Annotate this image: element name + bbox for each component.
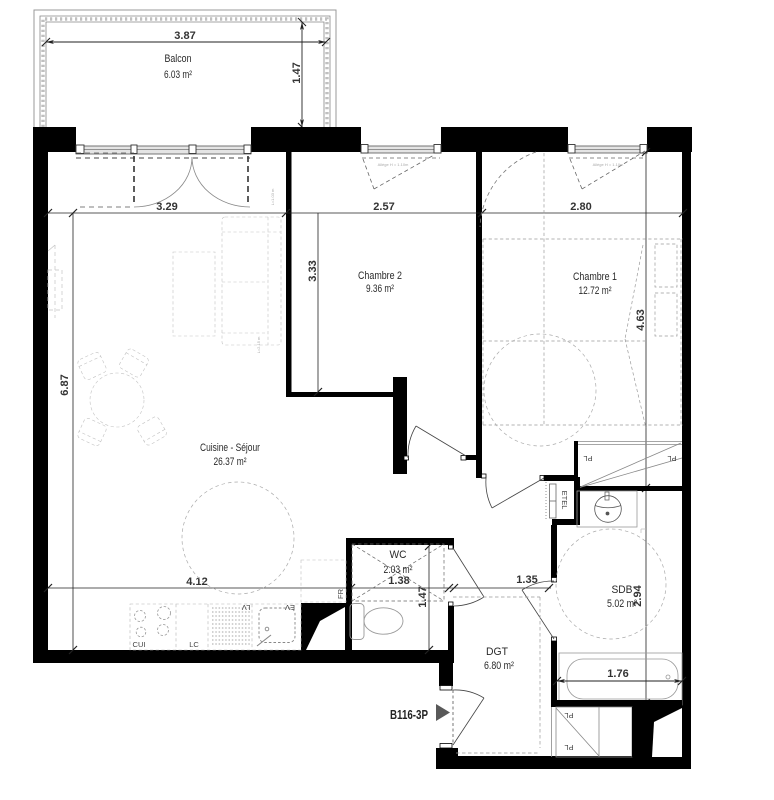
svg-text:Cuisine - Séjour: Cuisine - Séjour [200,442,260,454]
svg-text:ETEL: ETEL [560,491,569,510]
svg-text:6.03 m²: 6.03 m² [164,69,192,81]
svg-text:Allège H = 1.10m: Allège H = 1.10m [593,162,624,167]
svg-text:3.87: 3.87 [174,30,195,42]
svg-text:DGT: DGT [486,646,508,658]
svg-text:PL: PL [564,743,573,752]
svg-text:Chambre 1: Chambre 1 [573,271,617,283]
svg-text:WC: WC [390,549,407,561]
svg-text:EV: EV [285,603,295,612]
svg-text:SDB: SDB [612,584,633,596]
svg-text:Allège H = 1.10m: Allège H = 1.10m [378,162,409,167]
svg-text:9.36 m²: 9.36 m² [366,283,394,295]
svg-text:5.02 m²: 5.02 m² [607,598,637,610]
svg-text:3.33: 3.33 [307,260,319,281]
svg-text:1.76: 1.76 [607,668,628,680]
svg-text:L=2.15 m: L=2.15 m [256,336,261,353]
svg-text:12.72 m²: 12.72 m² [579,285,612,297]
svg-text:6.87: 6.87 [59,374,71,395]
svg-text:2.80: 2.80 [570,201,591,213]
svg-text:2.03 m²: 2.03 m² [384,564,413,576]
svg-text:PL: PL [583,454,592,463]
svg-text:B116-3P: B116-3P [390,707,428,722]
svg-text:1.47: 1.47 [291,62,303,83]
svg-text:PL: PL [564,711,573,720]
svg-text:PL: PL [667,454,676,463]
svg-text:1.38: 1.38 [388,575,409,587]
svg-text:CUI: CUI [133,640,146,649]
svg-text:Balcon: Balcon [165,53,192,65]
svg-text:1.47: 1.47 [417,586,429,607]
svg-text:L=1.03 m: L=1.03 m [270,188,275,205]
svg-text:2.57: 2.57 [373,201,394,213]
svg-text:FR: FR [336,588,345,599]
svg-text:4.63: 4.63 [635,309,647,330]
svg-text:26.37 m²: 26.37 m² [214,456,247,468]
svg-text:LV: LV [242,603,251,612]
svg-text:6.80 m²: 6.80 m² [484,660,514,672]
svg-text:3.29: 3.29 [156,201,177,213]
svg-text:4.12: 4.12 [186,576,207,588]
svg-text:LC: LC [189,640,199,649]
svg-text:Chambre 2: Chambre 2 [358,270,402,282]
